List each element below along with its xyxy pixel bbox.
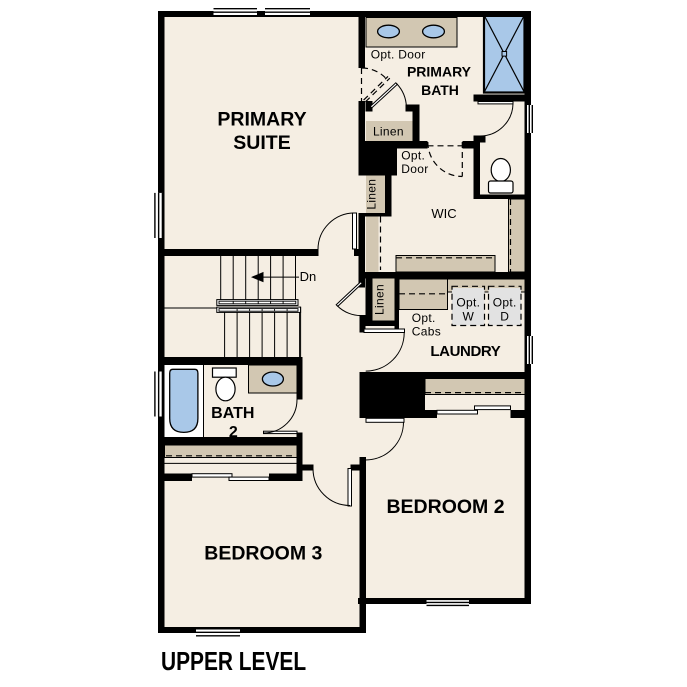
svg-text:BATH: BATH bbox=[421, 82, 459, 98]
svg-text:Door: Door bbox=[401, 162, 428, 176]
svg-text:Opt. Door: Opt. Door bbox=[371, 48, 426, 62]
svg-text:Dn: Dn bbox=[300, 269, 317, 284]
svg-text:PRIMARY: PRIMARY bbox=[217, 109, 306, 131]
svg-text:W: W bbox=[462, 310, 474, 324]
svg-text:SUITE: SUITE bbox=[233, 132, 290, 154]
svg-text:UPPER LEVEL: UPPER LEVEL bbox=[161, 647, 306, 675]
svg-text:BEDROOM 2: BEDROOM 2 bbox=[386, 496, 504, 518]
svg-text:Opt.: Opt. bbox=[401, 149, 425, 163]
svg-text:Cabs: Cabs bbox=[412, 325, 441, 339]
svg-text:Opt.: Opt. bbox=[456, 296, 480, 310]
svg-text:D: D bbox=[500, 310, 509, 324]
svg-text:Opt.: Opt. bbox=[493, 296, 517, 310]
svg-text:PRIMARY: PRIMARY bbox=[407, 64, 472, 80]
svg-text:LAUNDRY: LAUNDRY bbox=[430, 343, 500, 360]
svg-text:BATH: BATH bbox=[211, 405, 254, 422]
svg-text:Linen: Linen bbox=[373, 284, 387, 315]
svg-text:WIC: WIC bbox=[431, 206, 456, 221]
svg-text:2: 2 bbox=[229, 424, 238, 441]
svg-text:Linen: Linen bbox=[373, 125, 404, 139]
svg-text:BEDROOM 3: BEDROOM 3 bbox=[204, 543, 322, 565]
svg-text:Linen: Linen bbox=[365, 179, 379, 210]
svg-text:Opt.: Opt. bbox=[412, 311, 436, 325]
